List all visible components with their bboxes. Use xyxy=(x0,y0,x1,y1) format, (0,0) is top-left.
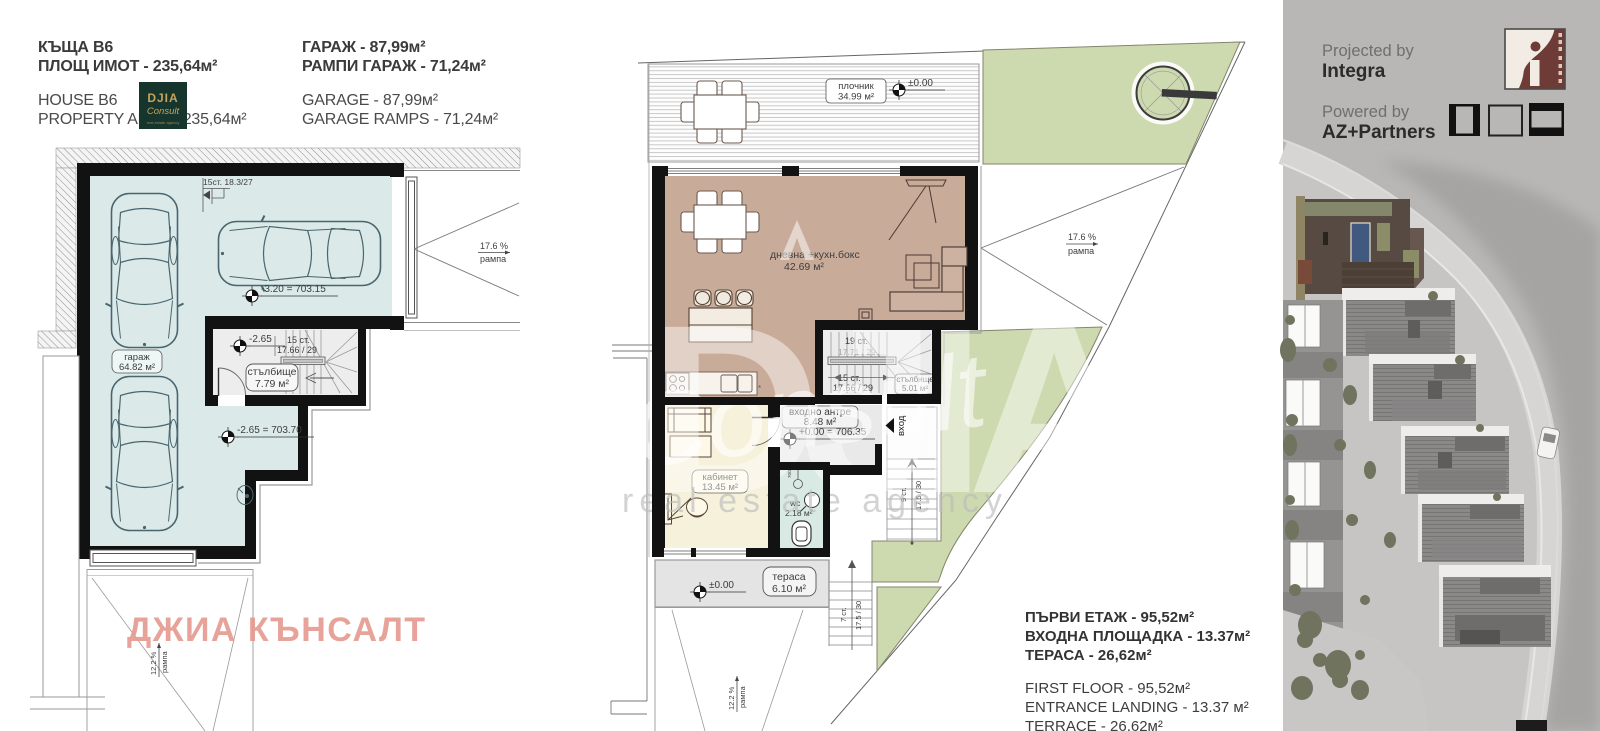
svg-text:Consult: Consult xyxy=(147,106,180,117)
svg-text:HOUSE B6: HOUSE B6 xyxy=(38,92,118,109)
svg-text:КЪЩА В6: КЪЩА В6 xyxy=(38,39,113,56)
svg-text:плочник: плочник xyxy=(838,81,874,92)
svg-text:34.99 м²: 34.99 м² xyxy=(838,92,874,103)
svg-text:рампа: рампа xyxy=(738,685,747,708)
svg-text:7 ст.: 7 ст. xyxy=(839,607,848,622)
svg-text:ПЛОЩ ИМОТ - 235,64м²: ПЛОЩ ИМОТ - 235,64м² xyxy=(38,58,217,75)
svg-text:Powered by: Powered by xyxy=(1322,103,1410,121)
svg-text:ТЕРАСА - 26,62м²: ТЕРАСА - 26,62м² xyxy=(1025,647,1152,664)
svg-text:стълбище: стълбище xyxy=(248,366,297,378)
svg-text:real estate agency: real estate agency xyxy=(622,482,1008,520)
svg-text:Integra: Integra xyxy=(1322,61,1386,82)
svg-text:ВХОДНА ПЛОЩАДКА - 13.37м²: ВХОДНА ПЛОЩАДКА - 13.37м² xyxy=(1025,628,1250,645)
svg-text:-3.20 = 703.15: -3.20 = 703.15 xyxy=(261,284,326,295)
svg-text:вход: вход xyxy=(896,415,907,436)
svg-text:64.82 м²: 64.82 м² xyxy=(119,362,155,373)
svg-text:ГАРАЖ - 87,99м²: ГАРАЖ - 87,99м² xyxy=(302,39,425,56)
svg-text:12.2 %: 12.2 % xyxy=(727,686,736,710)
svg-text:Projected by: Projected by xyxy=(1322,42,1414,60)
svg-text:DJIA: DJIA xyxy=(147,91,178,105)
svg-text:GARAGE - 87,99м²: GARAGE - 87,99м² xyxy=(302,92,439,109)
svg-text:ДЖИА КЪНСАЛТ: ДЖИА КЪНСАЛТ xyxy=(127,611,427,649)
svg-text:15 ст.: 15 ст. xyxy=(287,335,310,345)
svg-text:-2.65 = 703.70: -2.65 = 703.70 xyxy=(237,425,302,436)
svg-text:6.10 м²: 6.10 м² xyxy=(772,583,807,595)
svg-text:±0.00: ±0.00 xyxy=(709,580,734,591)
svg-text:GARAGE RAMPS - 71,24м²: GARAGE RAMPS - 71,24м² xyxy=(302,111,499,128)
svg-text:FIRST FLOOR - 95,52м²: FIRST FLOOR - 95,52м² xyxy=(1025,680,1190,697)
svg-text:15ст. 18.3/27: 15ст. 18.3/27 xyxy=(203,177,253,187)
svg-text:ENTRANCE LANDING - 13.37 м²: ENTRANCE LANDING - 13.37 м² xyxy=(1025,699,1249,716)
svg-text:17.5 / 30: 17.5 / 30 xyxy=(854,601,863,630)
svg-text:ПЪРВИ ЕТАЖ - 95,52м²: ПЪРВИ ЕТАЖ - 95,52м² xyxy=(1025,609,1194,626)
svg-text:real estate agency: real estate agency xyxy=(147,120,180,125)
svg-text:17.6 %: 17.6 % xyxy=(1068,232,1096,242)
svg-text:17.6 %: 17.6 % xyxy=(480,241,508,251)
svg-text:TERRACE - 26,62м²: TERRACE - 26,62м² xyxy=(1025,718,1163,731)
svg-text:7.79 м²: 7.79 м² xyxy=(255,378,290,390)
svg-text:РАМПИ ГАРАЖ - 71,24м²: РАМПИ ГАРАЖ - 71,24м² xyxy=(302,58,486,75)
svg-text:рампа: рампа xyxy=(1068,246,1094,256)
svg-text:17.66 / 29: 17.66 / 29 xyxy=(277,345,317,355)
svg-text:12.2 %: 12.2 % xyxy=(149,651,158,675)
svg-text:AZ+Partners: AZ+Partners xyxy=(1322,122,1436,143)
svg-text:тераса: тераса xyxy=(772,571,805,583)
svg-text:±0.00: ±0.00 xyxy=(908,78,933,89)
svg-text:42.69 м²: 42.69 м² xyxy=(784,261,824,273)
svg-text:рампа: рампа xyxy=(480,254,506,264)
svg-text:-2.65: -2.65 xyxy=(249,334,272,345)
svg-text:рампа: рампа xyxy=(160,650,169,673)
